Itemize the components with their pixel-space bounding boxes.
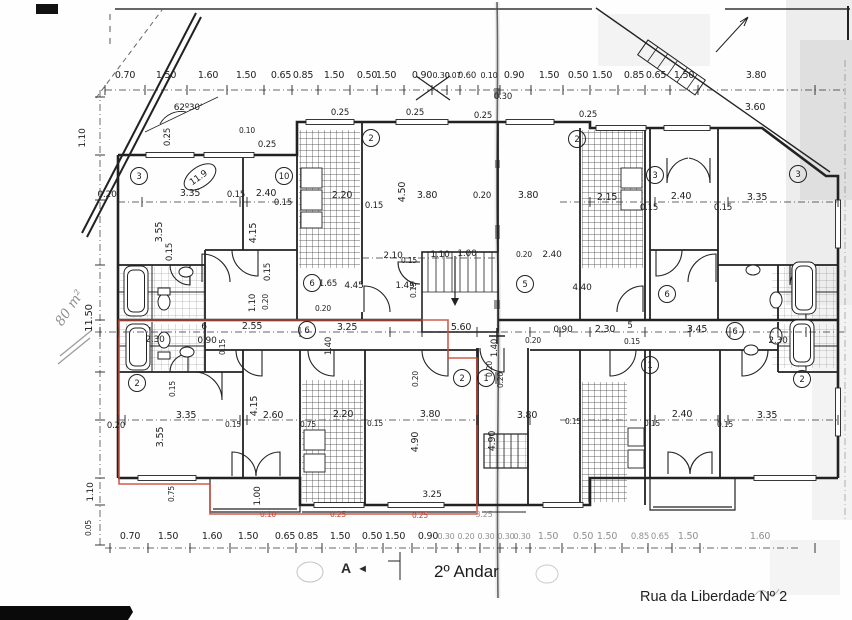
dim-label: 3.25: [422, 490, 441, 500]
dim-label: 0.90: [412, 70, 433, 81]
dim-label: 1.10: [78, 128, 88, 148]
kitchen-unit: [628, 428, 644, 446]
dim-label: 0.15: [365, 201, 383, 211]
dim-label: 0.50: [573, 531, 594, 542]
dim-label: 3.80: [420, 409, 441, 420]
dim-label: 0.90: [504, 70, 525, 81]
dim-label: 5.60: [451, 322, 472, 333]
dim-label: 0.20: [516, 250, 532, 259]
dim-label: 1.40: [490, 339, 500, 357]
door-arc: [202, 254, 230, 282]
dim-label: 3.25: [475, 510, 492, 519]
section-marker-letter: A: [341, 560, 351, 576]
dim-label: 1.50: [678, 531, 699, 542]
dim-label: 0.90: [197, 336, 217, 346]
window: [836, 388, 841, 436]
bathtub-inner: [130, 328, 147, 366]
dim-label: 0.25: [330, 510, 346, 519]
dim-label: 0.15: [640, 203, 658, 213]
dim-label: 0.20: [473, 191, 491, 201]
door-arc: [610, 350, 636, 376]
dim-label: 0.30: [513, 532, 530, 541]
area-note-underline: [58, 330, 92, 364]
address-line-1: Rua da Liberdade Nº 2: [640, 588, 787, 608]
dim-label: 2.30: [595, 324, 616, 335]
dim-label: 1.50: [592, 70, 613, 81]
room-number: 5: [522, 280, 527, 290]
dim-label: 0.15: [717, 420, 733, 429]
dim-label: 0.65: [646, 70, 667, 81]
dim-label: 1.50: [674, 70, 695, 81]
dim-label: 0.10: [239, 126, 255, 135]
dim-label: 1.50: [158, 531, 179, 542]
dim-label: 0.60: [458, 71, 476, 81]
dim-label: 0.50: [568, 70, 589, 81]
dim-label: 0.65: [271, 70, 292, 81]
kitchen-unit: [304, 454, 325, 472]
dim-label: 0.15: [565, 417, 581, 426]
dim-label: 0.25: [163, 128, 173, 146]
dim-label: 3.35: [176, 410, 197, 421]
dim-label: 0.20: [261, 294, 270, 310]
dim-label: 1.40: [324, 337, 334, 355]
window: [543, 503, 583, 508]
dim-label: 0.10: [260, 510, 276, 519]
room-number: 3: [136, 172, 141, 182]
angle-annotation: 62º30': [174, 103, 202, 113]
room-number: 6: [309, 279, 314, 289]
window: [146, 153, 194, 158]
dim-label: 2.60: [263, 410, 284, 421]
door-arc: [656, 250, 682, 276]
dim-label: 4.15: [248, 223, 259, 244]
balconies: [210, 478, 735, 512]
dim-label: 4.90: [410, 432, 421, 453]
sink: [179, 267, 193, 277]
dim-label: 3.35: [747, 192, 768, 203]
dim-label: 0.15: [367, 419, 383, 428]
angle-arc: [160, 111, 186, 124]
kitchen-unit: [301, 168, 322, 188]
dim-label: 0.85: [298, 531, 319, 542]
dim-label: 0.70: [120, 531, 141, 542]
room-number: 6: [304, 326, 309, 336]
room-number-circles: 31022336566622112: [129, 130, 811, 392]
stair-arrow-head: [451, 298, 459, 306]
room-number: 3: [795, 170, 800, 180]
dim-label: 0.75: [300, 420, 316, 429]
dim-label: 0.15: [227, 190, 245, 200]
dim-label: 3.80: [746, 70, 767, 81]
dim-label: 0.20: [525, 336, 541, 345]
door-arc: [194, 372, 222, 400]
dim-label: 0.65: [275, 531, 296, 542]
dim-label: 1.50: [597, 531, 618, 542]
toilet-tank: [158, 352, 170, 359]
window: [506, 120, 554, 125]
scan-corner-mark: [36, 4, 58, 14]
dim-label: 0.85: [624, 70, 645, 81]
dim-label: 0.15: [274, 198, 292, 208]
double-door-balcony-left: [232, 452, 280, 476]
dim-label: 5: [627, 321, 632, 331]
dim-label: 2.15: [597, 192, 618, 203]
dim-label: 3.55: [155, 427, 166, 448]
dim-label: 0.25: [258, 140, 276, 150]
bathtub-inner: [796, 266, 813, 310]
scan-black-bar: [0, 606, 133, 620]
window: [396, 120, 448, 125]
dim-label: 3.60: [745, 102, 766, 113]
dim-label: 1.50: [156, 70, 177, 81]
floor-title: 2º Andar: [434, 562, 499, 582]
dim-label: 0.90: [418, 531, 439, 542]
window: [204, 153, 254, 158]
dim-label: 0.75: [167, 486, 176, 502]
dim-label: 2.40: [671, 191, 692, 202]
dim-label: 0.15: [218, 339, 227, 355]
window: [836, 200, 841, 248]
dim-label: 2.20: [332, 190, 353, 201]
dim-label: 1.50: [539, 70, 560, 81]
room-number: 2: [459, 374, 464, 384]
dim-label: 0.30: [497, 532, 514, 541]
dim-label: 0.05: [84, 520, 93, 536]
dim-label: 0.20: [97, 190, 117, 200]
room-number: 1: [647, 361, 652, 371]
dim-label: 6: [201, 322, 207, 332]
dim-label: 1.10: [248, 294, 258, 312]
kitchen-unit: [628, 450, 644, 468]
dim-label: 0.20: [457, 532, 474, 541]
dim-label: 1.50: [538, 531, 559, 542]
dim-label: 0.50: [357, 70, 378, 81]
room-number: 10: [279, 172, 289, 182]
dim-label: 4.40: [572, 283, 592, 293]
dim-label: 1.50: [385, 531, 406, 542]
section-arrow-icon: ◄: [357, 563, 368, 575]
pencil-circle: [536, 565, 558, 583]
floor-plan-drawing: 31022336566622112 0.701.501.601.500.650.…: [0, 0, 852, 620]
dim-label: 2.55: [242, 321, 263, 332]
window: [664, 126, 710, 131]
bath-fixtures: [124, 262, 816, 370]
boundary-dashed-line: [96, 10, 162, 98]
dim-label: 0.85: [631, 532, 649, 542]
dim-label: 1.10: [86, 482, 96, 502]
window: [138, 476, 196, 481]
sink: [744, 345, 758, 355]
dim-label: 0.30: [437, 532, 454, 541]
dim-label: 1.50: [376, 70, 397, 81]
dim-label: 1.60: [750, 531, 771, 542]
dim-label: 0.15: [263, 263, 273, 281]
door-arc: [364, 286, 390, 312]
dim-label: 0.85: [293, 70, 314, 81]
room-number: 3: [652, 171, 657, 181]
double-door-balcony-right: [668, 452, 712, 474]
dim-label: 0.15: [401, 256, 417, 265]
bathtub-inner: [128, 270, 145, 312]
dim-label: 0.10: [480, 71, 497, 80]
dim-label: 0.25: [412, 511, 428, 520]
toilet: [770, 292, 782, 308]
dim-label: 1.00: [253, 486, 263, 506]
kitchen-unit: [301, 212, 322, 228]
dim-label: 3.45: [687, 324, 708, 335]
window: [596, 126, 646, 131]
room-number: 6: [664, 290, 669, 300]
dim-label: 1.50: [238, 531, 259, 542]
kitchen-unit: [304, 430, 325, 450]
section-marker: A◄: [341, 560, 368, 576]
dim-label: 0.25: [474, 111, 492, 121]
dim-label: 0.90: [553, 325, 573, 335]
dim-label: 3.80: [417, 190, 438, 201]
window: [754, 476, 816, 481]
dim-label: 0.15: [165, 243, 175, 261]
door-arc: [232, 250, 258, 276]
window: [306, 120, 354, 125]
kitchen-unit: [621, 168, 642, 188]
kitchen-unit: [301, 190, 322, 210]
door-arc: [688, 254, 716, 282]
scanned-floor-plan-page: 31022336566622112 0.701.501.601.500.650.…: [0, 0, 852, 620]
pencil-circle: [297, 562, 323, 582]
door-arc: [422, 350, 448, 376]
dim-label: 3.80: [517, 410, 538, 421]
room-number: 2: [134, 379, 139, 389]
dim-label: 0.20: [411, 371, 420, 387]
dim-label: 4.90: [487, 431, 498, 452]
sink: [746, 265, 760, 275]
dim-label: 0.15: [624, 337, 640, 346]
dim-label: 2.20: [333, 409, 354, 420]
dim-label: 1.50: [330, 531, 351, 542]
window: [388, 503, 444, 508]
dim-label: 0.15: [168, 381, 177, 397]
dim-label: 11.50: [84, 304, 95, 332]
dim-label: 1.10: [430, 250, 450, 260]
dim-label: 1.65: [319, 279, 337, 289]
dim-label: 0.15: [225, 420, 241, 429]
dim-label: 0.20: [315, 304, 331, 313]
dim-label: 4.45: [344, 281, 363, 291]
address-block: Rua da Liberdade Nº 2 Bom Sucesso Alverc…: [640, 549, 787, 620]
room-number: 2: [574, 135, 579, 145]
room-number: 2: [368, 134, 373, 144]
dim-label: 3.25: [337, 322, 358, 333]
dim-label: 0.20: [485, 361, 494, 377]
room-number: 2: [799, 375, 804, 385]
dim-label: 1.60: [198, 70, 219, 81]
dim-label: 2.40: [672, 409, 693, 420]
dim-label: 0.70: [115, 70, 136, 81]
dim-label: 0.25: [331, 108, 349, 118]
dim-label: 0.20: [107, 421, 125, 431]
dim-label: 2.30: [145, 335, 165, 345]
dim-label: 0.50: [362, 531, 383, 542]
dim-label: 3.35: [180, 188, 201, 199]
dim-label: 0.20: [496, 372, 505, 388]
dimension-lines: [95, 60, 845, 548]
toilet: [158, 294, 170, 310]
dim-label: 0.25: [406, 108, 424, 118]
dim-label: 3.35: [757, 410, 778, 421]
window: [314, 503, 364, 508]
dim-label: 3.80: [518, 190, 539, 201]
sink: [180, 347, 194, 357]
dim-label: 0.15: [714, 203, 732, 213]
dim-label: 0.25: [579, 110, 597, 120]
dim-label: 1.60: [202, 531, 223, 542]
dim-label: 1.50: [236, 70, 257, 81]
dim-label: 1.50: [324, 70, 345, 81]
title-reference-line: [388, 552, 400, 580]
dim-label: 1.00: [457, 249, 477, 259]
north-arrow: [716, 17, 748, 52]
dim-label: 3.55: [154, 222, 165, 243]
dim-label: 2.40: [542, 250, 562, 260]
stair-core: [422, 252, 528, 512]
dim-label: 4.15: [249, 396, 260, 417]
dim-label: 4.50: [397, 182, 408, 203]
dim-label: 0.15: [409, 282, 418, 298]
bathtub-inner: [794, 324, 811, 362]
room-number: 6: [732, 327, 737, 337]
door-arc: [617, 286, 643, 312]
kitchen-unit: [621, 190, 642, 210]
dim-label: 0.65: [651, 532, 669, 542]
dim-label: 2.30: [768, 336, 788, 346]
dim-label: 0.15: [644, 419, 660, 428]
dim-label: 0.30: [494, 92, 512, 102]
toilet-tank: [158, 288, 170, 295]
double-door-top-right: [667, 158, 710, 183]
dim-label: 0.30: [477, 532, 494, 541]
